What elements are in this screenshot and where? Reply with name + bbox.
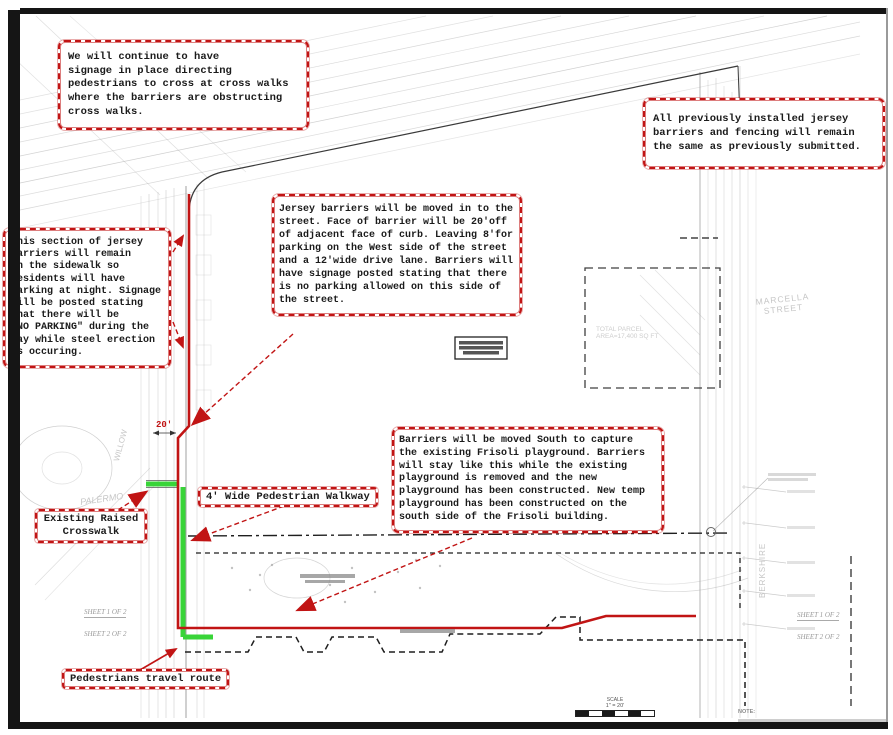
parcel-area-text: TOTAL PARCEL AREA=17,400 SQ FT — [596, 326, 658, 340]
graphic-scale: SCALE 1" = 20' — [560, 697, 670, 717]
general-note: NOTE: — [738, 700, 886, 724]
callout-previously-installed: All previously installed jersey barriers… — [643, 98, 885, 169]
sheet-reference-right: SHEET 1 OF 2 SHEET 2 OF 2 — [797, 599, 839, 653]
street-label-berkshire: BERKSHIRE — [758, 543, 767, 598]
sheet-reference-left: SHEET 1 OF 2 SHEET 2 OF 2 — [84, 596, 126, 650]
sheet-ref-line1: SHEET 1 OF 2 — [797, 610, 839, 622]
dimension-20ft: 20' — [156, 420, 172, 430]
playground-micro-text — [300, 574, 355, 585]
sheet-ref-line2: SHEET 2 OF 2 — [797, 632, 839, 643]
callout-barriers-south: Barriers will be moved South to capture … — [392, 427, 664, 533]
sheet-bottom-border — [8, 722, 888, 729]
note-label: NOTE: — [738, 709, 755, 715]
label-travel-route: Pedestrians travel route — [62, 669, 229, 689]
plan-label-box — [455, 337, 507, 359]
scale-value: 1" = 20' — [560, 703, 670, 709]
sheet-right-border — [886, 8, 888, 722]
label-raised-crosswalk: Existing Raised Crosswalk — [35, 509, 147, 543]
site-plan-sheet: WILLOW PALERMO MARCELLA STREET BERKSHIRE… — [0, 0, 893, 735]
sheet-left-border — [8, 10, 20, 728]
scale-bar-graphic — [575, 710, 655, 717]
callout-jersey-moved: Jersey barriers will be moved in to the … — [272, 194, 522, 316]
callout-signage: We will continue to have signage in plac… — [58, 40, 309, 130]
fence-micro-text — [400, 629, 455, 635]
sheet-top-border — [20, 8, 888, 14]
callout-no-parking: This section of jersey barriers will rem… — [3, 228, 171, 368]
label-pedestrian-walkway: 4' Wide Pedestrian Walkway — [198, 487, 378, 507]
sheet-ref-line1: SHEET 1 OF 2 — [84, 607, 126, 619]
sheet-ref-line2: SHEET 2 OF 2 — [84, 629, 126, 640]
